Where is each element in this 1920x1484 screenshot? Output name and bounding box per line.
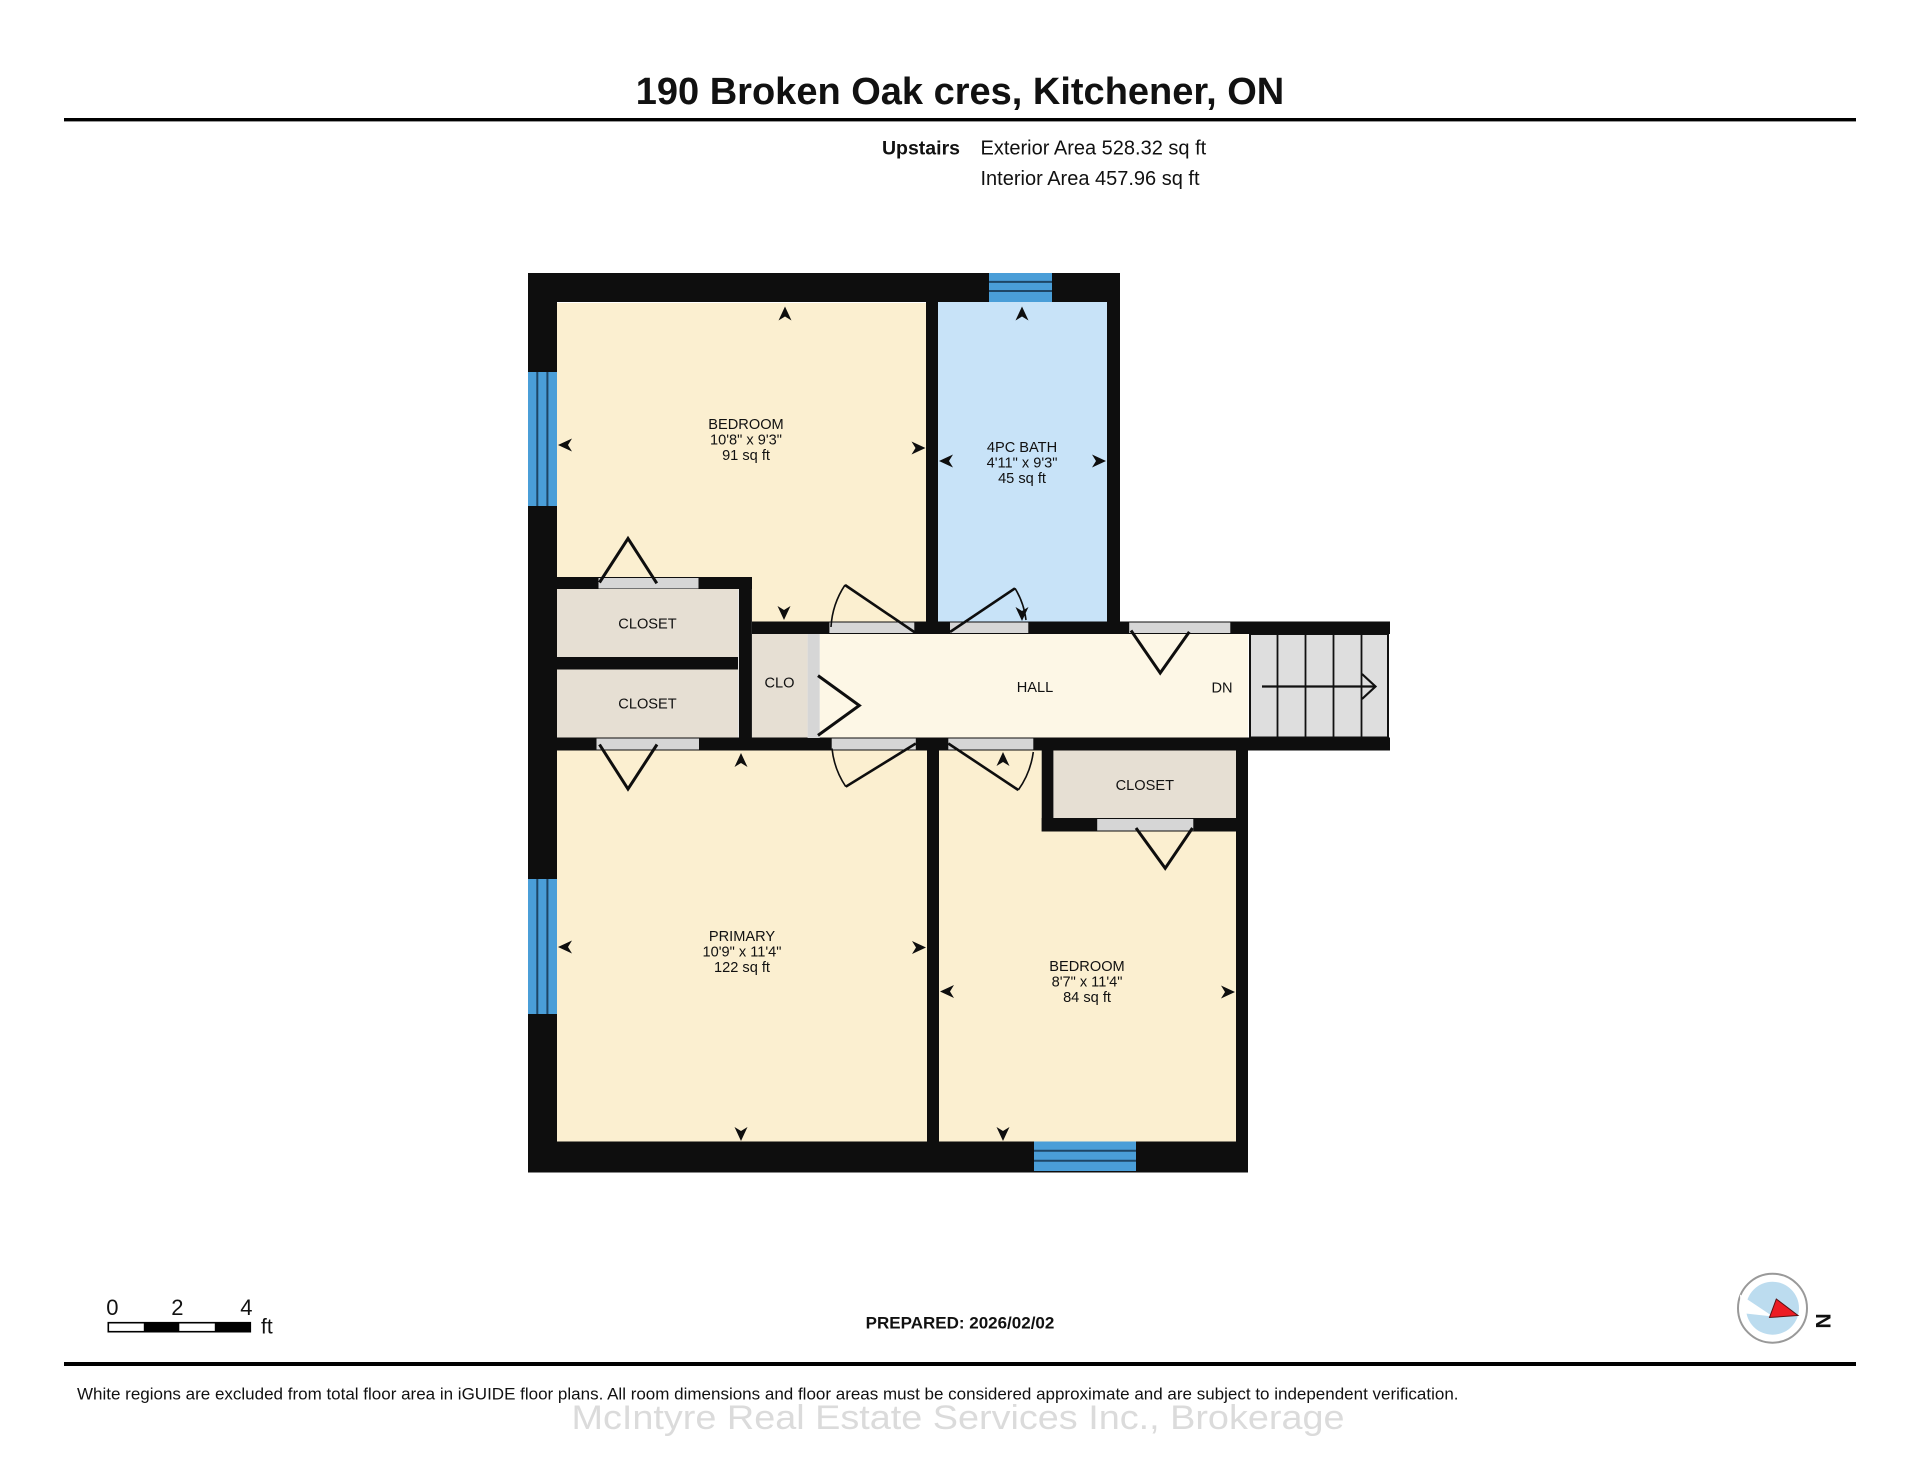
svg-text:PREPARED: 2026/02/02: PREPARED: 2026/02/02 bbox=[866, 1314, 1055, 1333]
svg-text:CLO: CLO bbox=[764, 676, 794, 692]
svg-text:190 Broken Oak cres, Kitchener: 190 Broken Oak cres, Kitchener, ON bbox=[636, 71, 1284, 113]
svg-text:4: 4 bbox=[240, 1295, 252, 1320]
svg-text:2: 2 bbox=[171, 1295, 183, 1320]
svg-text:0: 0 bbox=[106, 1295, 118, 1320]
svg-text:HALL: HALL bbox=[1017, 680, 1054, 696]
svg-text:10'9" x 11'4": 10'9" x 11'4" bbox=[703, 945, 782, 961]
svg-text:N: N bbox=[1811, 1313, 1834, 1328]
svg-text:10'8" x 9'3": 10'8" x 9'3" bbox=[710, 433, 782, 449]
svg-text:84 sq ft: 84 sq ft bbox=[1063, 990, 1111, 1006]
svg-text:BEDROOM: BEDROOM bbox=[708, 417, 783, 433]
svg-text:DN: DN bbox=[1211, 681, 1232, 697]
svg-text:ft: ft bbox=[261, 1316, 273, 1339]
svg-text:Exterior Area 528.32 sq ft: Exterior Area 528.32 sq ft bbox=[981, 138, 1207, 160]
svg-text:BEDROOM: BEDROOM bbox=[1049, 959, 1124, 975]
svg-text:CLOSET: CLOSET bbox=[1116, 778, 1174, 794]
svg-text:CLOSET: CLOSET bbox=[618, 617, 676, 633]
svg-text:45 sq ft: 45 sq ft bbox=[998, 471, 1046, 487]
svg-text:122 sq ft: 122 sq ft bbox=[714, 960, 770, 976]
svg-text:Upstairs: Upstairs bbox=[882, 138, 960, 160]
svg-text:4PC BATH: 4PC BATH bbox=[987, 440, 1057, 456]
svg-text:CLOSET: CLOSET bbox=[618, 697, 676, 713]
svg-text:91 sq ft: 91 sq ft bbox=[722, 448, 770, 464]
svg-text:McIntyre Real Estate Services: McIntyre Real Estate Services Inc., Brok… bbox=[572, 1399, 1345, 1437]
svg-text:8'7" x 11'4": 8'7" x 11'4" bbox=[1052, 975, 1123, 991]
svg-text:PRIMARY: PRIMARY bbox=[709, 929, 775, 945]
svg-text:Interior Area 457.96 sq ft: Interior Area 457.96 sq ft bbox=[981, 168, 1200, 190]
svg-text:4'11" x 9'3": 4'11" x 9'3" bbox=[987, 456, 1058, 472]
